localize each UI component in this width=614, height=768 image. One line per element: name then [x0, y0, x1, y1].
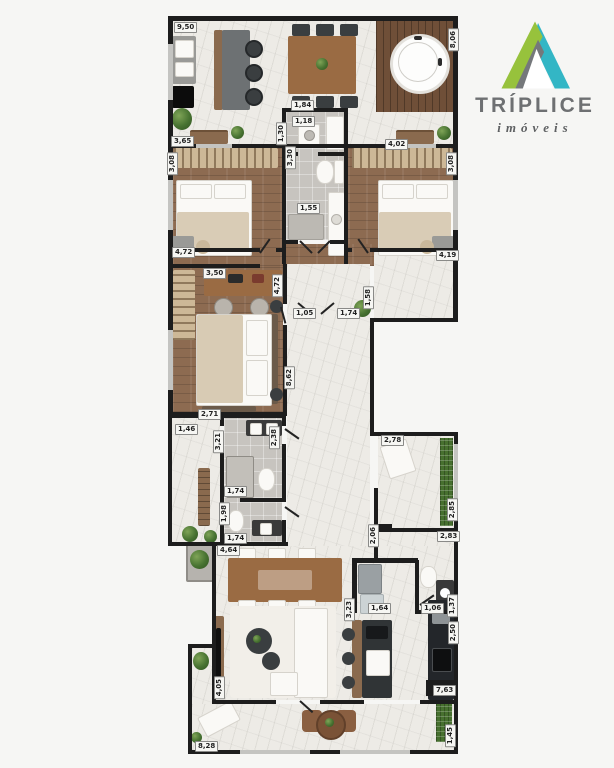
dimension-label: 1,30: [276, 122, 287, 145]
dimension-label: 2,38: [269, 426, 280, 449]
dimension-label: 2,85: [447, 498, 458, 521]
dimension-label: 3,50: [203, 268, 226, 279]
dimension-label: 4,64: [217, 545, 240, 556]
dimension-label: 8,28: [195, 741, 218, 752]
dimension-label: 3,08: [167, 152, 178, 175]
brand-tagline: imóveis: [460, 120, 610, 136]
dimension-label: 4,02: [385, 139, 408, 150]
dimension-label: 1,37: [447, 594, 458, 617]
dimension-label: 1,64: [368, 603, 391, 614]
dimension-label: 4,19: [436, 250, 459, 261]
dimension-label: 1,58: [363, 286, 374, 309]
dimension-label: 3,08: [446, 152, 457, 175]
dimension-label: 4,72: [172, 247, 195, 258]
dimension-label: 4,05: [214, 676, 225, 699]
dimension-label: 8,62: [284, 366, 295, 389]
dimension-label: 1,55: [297, 203, 320, 214]
dimension-label: 2,71: [198, 409, 221, 420]
dimension-label: 4,72: [272, 274, 283, 297]
dimension-label: 1,45: [445, 724, 456, 747]
brand-name: TRÍPLICE: [460, 94, 610, 118]
dimension-label: 7,63: [433, 685, 456, 696]
dimension-label: 1,18: [292, 116, 315, 127]
dimension-label: 3,21: [213, 430, 224, 453]
dimension-label: 3,30: [285, 146, 296, 169]
brand-logo: TRÍPLICE imóveis: [460, 20, 610, 136]
dimension-label: 1,74: [337, 308, 360, 319]
dimension-label: 3,23: [344, 598, 355, 621]
dimension-label: 1,46: [175, 424, 198, 435]
dimension-label: 9,50: [174, 22, 197, 33]
dimension-label: 2,78: [381, 435, 404, 446]
dimension-label: 2,06: [368, 524, 379, 547]
dimension-label: 1,74: [224, 486, 247, 497]
dimension-label: 1,74: [224, 533, 247, 544]
triangle-logo-icon: [495, 20, 575, 90]
dimension-label: 1,84: [291, 100, 314, 111]
dimension-label: 1,06: [421, 603, 444, 614]
dimension-label: 8,06: [448, 28, 459, 51]
dimension-label: 2,83: [437, 531, 460, 542]
dimension-label: 2,50: [448, 621, 459, 644]
dimension-label: 1,05: [293, 308, 316, 319]
dimension-label: 1,98: [219, 502, 230, 525]
floorplan-page: 9,508,063,651,841,181,304,023,303,083,08…: [0, 0, 614, 768]
dimension-label: 3,65: [171, 136, 194, 147]
